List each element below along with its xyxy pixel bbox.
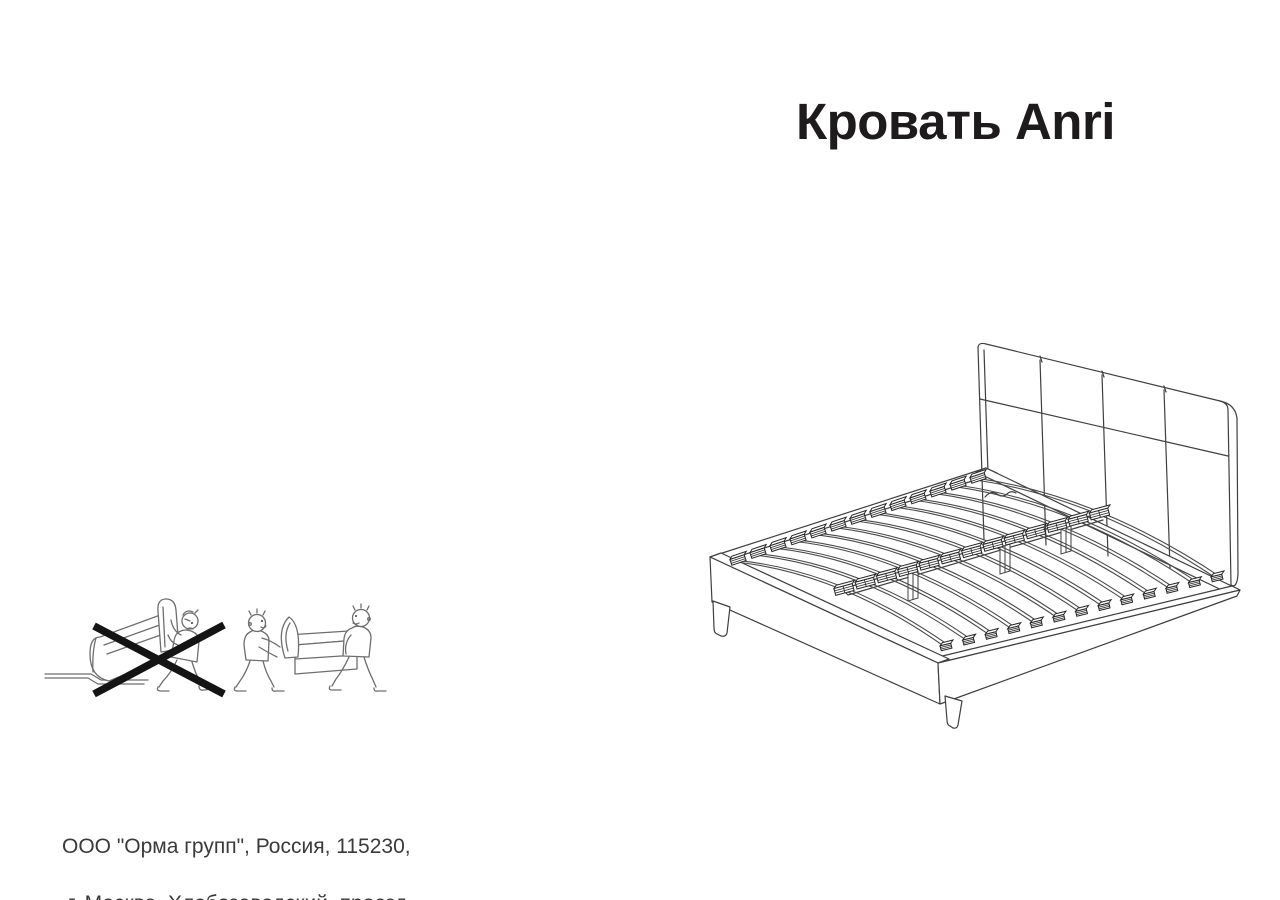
headboard-seam-3: [1164, 390, 1170, 568]
headboard: [978, 343, 1238, 585]
slat-bracket: [1098, 600, 1113, 611]
leg-right: [263, 661, 284, 691]
slat-bracket: [1052, 611, 1067, 622]
slat-bracket: [1030, 617, 1045, 628]
slat-bracket: [985, 628, 1000, 639]
manual-page: Кровать Anri: [0, 0, 1280, 900]
leg-left: [234, 661, 250, 691]
slat-bracket: [1210, 571, 1225, 582]
front-left-leg: [713, 601, 730, 636]
two-person-carry-illustration: [234, 604, 386, 691]
carrier-left: [234, 609, 284, 691]
do-not-drag-illustration: [45, 599, 224, 694]
slat-bracket: [1089, 505, 1113, 520]
torso: [244, 630, 269, 661]
foot-rail-face: [710, 557, 940, 704]
illustration-canvas: [0, 0, 1280, 900]
leg-right: [364, 657, 386, 691]
eye: [191, 622, 193, 624]
slat-bracket: [1007, 623, 1022, 634]
headboard-right-bottom: [1231, 574, 1238, 586]
slat-bracket: [962, 634, 977, 645]
bed-line-drawing: [710, 343, 1240, 728]
manufacturer-address: ООО "Орма групп", Россия, 115230, г. Мос…: [62, 799, 413, 900]
slat-bracket: [1165, 582, 1180, 593]
slat-bracket: [1120, 594, 1135, 605]
slat-bracket: [1143, 588, 1158, 599]
eye: [261, 620, 263, 622]
address-line: ООО "Орма групп", Россия, 115230,: [62, 837, 413, 856]
address-line: г. Москва, Хлебозаводский проезд,: [62, 894, 413, 900]
front-right-leg: [945, 696, 962, 728]
headboard-seam-1: [1040, 360, 1046, 545]
bed-frame: [710, 468, 1240, 704]
eye: [355, 615, 357, 617]
headboard-left-inner-edge: [984, 350, 988, 473]
slat-bracket: [939, 640, 954, 651]
headboard-right-front-edge: [1228, 410, 1231, 585]
slat-bracket: [1075, 605, 1090, 616]
headboard-right-back-edge: [1237, 418, 1238, 574]
